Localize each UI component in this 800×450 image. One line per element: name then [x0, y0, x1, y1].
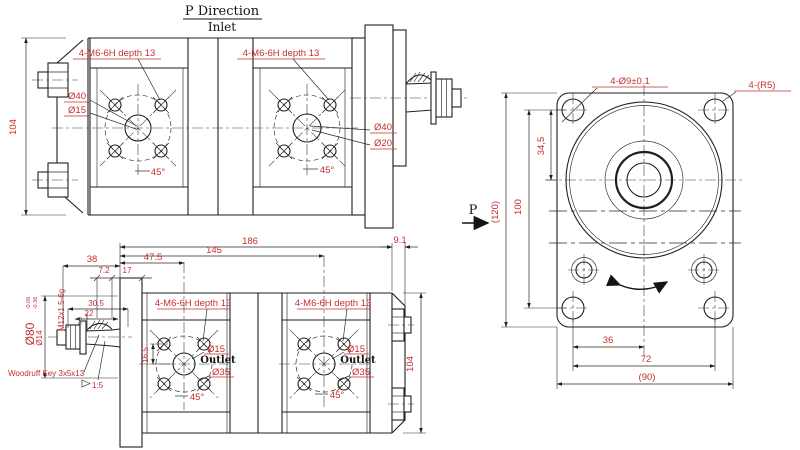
- flange-horizontal-dims: 36 72 (90): [557, 319, 733, 389]
- view-title: P Direction: [185, 4, 260, 19]
- dim-30-5: 30.5: [88, 299, 104, 308]
- port-dia-callout: Ø20: [374, 138, 392, 149]
- shaft-nut: [66, 325, 80, 349]
- hex-fitting: [388, 309, 414, 341]
- drawing-page: P Direction Inlet: [0, 0, 800, 450]
- dim-36: 36: [603, 335, 614, 346]
- pump-technical-drawing: P Direction Inlet: [0, 0, 800, 450]
- flange-vertical-dims: (120) 100 34,5: [490, 93, 566, 327]
- view-subtitle: Inlet: [208, 20, 236, 34]
- dim-104: 104: [8, 119, 19, 135]
- dim-120: (120): [490, 201, 501, 223]
- thread-callout: 4-M6-6H depth 13: [155, 298, 232, 309]
- inlet-view: P Direction Inlet: [8, 4, 470, 228]
- thread-callout: 4-M6-6H depth 13: [79, 48, 156, 59]
- thread-callout: 4-M6-6H depth 13: [295, 298, 372, 309]
- pilot-dia-label: Ø80: [23, 322, 37, 345]
- shaft-washer: [431, 72, 436, 124]
- dim-72: 72: [641, 354, 652, 365]
- shaft-nut: [436, 79, 452, 117]
- outlet-port-right: 45°: [279, 256, 369, 410]
- port-dia-callout: Ø15: [207, 344, 225, 355]
- outlet-label: Outlet: [340, 355, 376, 366]
- boss-dia-callout: Ø35: [352, 367, 370, 378]
- angle-label: 45°: [320, 165, 335, 176]
- dim-17: 17: [123, 266, 132, 275]
- dim-145: 145: [206, 245, 222, 256]
- woodruff-key-label: Woodruff Key 3x5x13: [8, 369, 85, 378]
- dim-9-5: 9.5: [78, 317, 84, 325]
- dim-104: 104: [405, 356, 416, 372]
- outlet-label: Outlet: [200, 355, 236, 366]
- inlet-port-left: 45°: [52, 84, 358, 178]
- mounting-flange-edge: [120, 278, 142, 447]
- thread-stub: [452, 89, 461, 107]
- dim-38: 38: [87, 254, 98, 265]
- hex-fitting: [388, 388, 414, 420]
- dim-22: 22: [85, 309, 94, 318]
- port-dia-callout: Ø15: [347, 344, 365, 355]
- dim-34-5: 34,5: [536, 137, 547, 156]
- dim-47-5: 47.5: [144, 252, 163, 263]
- holes-callout: 4-Ø9±0.1: [610, 76, 650, 87]
- boss-dia-callout: Ø40: [68, 91, 86, 102]
- pilot-tol-lower: -0.36: [33, 297, 39, 310]
- thread-callout: 4-M6-6H depth 13: [243, 48, 320, 59]
- outlet-port-left: 45°: [139, 262, 229, 410]
- boss-dia-callout: Ø35: [212, 367, 230, 378]
- dim-100: 100: [513, 199, 524, 215]
- flange-view: 4-Ø9±0.1 4-(R5) P (120) 100 34,5 36: [462, 76, 791, 389]
- hex-fitting: [32, 163, 78, 197]
- port-dia-callout: Ø15: [68, 105, 86, 116]
- angle-label: 45°: [190, 392, 205, 403]
- thread-stub: [57, 330, 66, 345]
- angle-label: 45°: [330, 390, 345, 401]
- dim-186: 186: [242, 236, 258, 247]
- shaft-washer: [80, 321, 86, 354]
- shaft-thread-label: M12x1.5-6g: [57, 289, 66, 331]
- taper-symbol-icon: [82, 380, 90, 387]
- length-dimensions: 186 9.1 145 47.5 38 7.2 17: [63, 235, 418, 328]
- dim-90: (90): [639, 372, 656, 383]
- dim-7-2: 7.2: [98, 266, 110, 275]
- flange-plate: [557, 93, 733, 327]
- angle-label: 45°: [151, 167, 166, 178]
- outlet-view: 45° 45° 4-M6-6H depth 13 4-M6-6H depth 1…: [8, 235, 426, 447]
- inlet-port-right: 45°: [269, 84, 345, 176]
- dim-9-1: 9.1: [393, 235, 406, 246]
- taper-label: 1:5: [92, 381, 104, 390]
- corner-radius-callout: 4-(R5): [749, 80, 776, 91]
- p-direction-label: P: [469, 203, 478, 218]
- svg-text:16.5: 16.5: [141, 347, 150, 363]
- pilot-tol-upper: -0.06: [26, 297, 32, 310]
- boss-dia-callout: Ø40: [374, 122, 392, 133]
